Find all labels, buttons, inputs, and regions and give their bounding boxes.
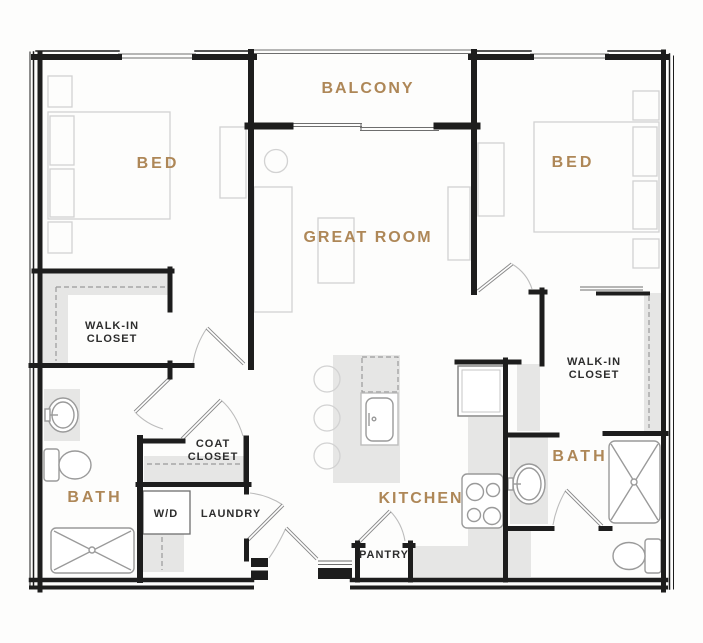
balcony-railing — [254, 50, 471, 54]
kitchen-south-counter-shading — [413, 546, 503, 578]
great-room-label: GREAT ROOM — [303, 229, 432, 246]
balcony-label: BALCONY — [321, 80, 414, 97]
left-walkin-label-line2: CLOSET — [87, 333, 138, 345]
right-closet-entry-shelf — [580, 287, 643, 290]
stove-burner — [487, 484, 500, 497]
right-bed-window — [530, 54, 609, 58]
coat-closet-door-arc — [221, 400, 243, 436]
left-bed-label: BED — [137, 155, 180, 172]
kitchen-label: KITCHEN — [378, 490, 463, 507]
right-bed-pillow — [633, 181, 657, 229]
right-nightstand — [633, 91, 659, 120]
stove-burner — [467, 484, 484, 501]
entry-step-right — [318, 568, 352, 579]
coffee-table — [318, 218, 354, 283]
island-faucet-knob — [372, 417, 376, 421]
right-bed-label: BED — [552, 154, 595, 171]
right-shower-drain — [631, 479, 637, 485]
left-nightstand — [48, 222, 72, 253]
media-console — [448, 187, 470, 260]
round-table — [265, 150, 288, 173]
right-toilet-bowl — [613, 543, 645, 570]
pantry-label: PANTRY — [359, 549, 409, 561]
pantry-door-arc — [390, 511, 405, 541]
laundry-door-arc — [250, 493, 283, 505]
windows — [118, 50, 643, 565]
right-bed — [534, 122, 659, 232]
entry-door-arc — [269, 528, 286, 558]
left-bed-pillow — [50, 169, 74, 217]
shaded-areas — [42, 273, 661, 578]
left-nightstand — [48, 76, 72, 107]
refrigerator-inner — [462, 370, 500, 412]
left-walkin-label-line1: WALK-IN — [85, 320, 139, 332]
floor-plan: BALCONY BED BED GREAT ROOM KITCHEN BATH … — [0, 0, 703, 643]
left-dresser — [220, 127, 246, 198]
coat-closet-label-line2: CLOSET — [188, 451, 239, 463]
right-bed-door-arc — [512, 264, 532, 289]
right-bath-north-wall — [508, 434, 666, 436]
left-sink-faucet-icon — [45, 409, 50, 421]
right-walkin-label-line1: WALK-IN — [567, 356, 621, 368]
right-closet-west-wall — [531, 290, 545, 364]
sofa — [254, 187, 292, 312]
left-toilet-tank — [44, 449, 59, 481]
left-bed-pillow — [50, 116, 74, 165]
left-toilet-bowl — [59, 451, 91, 479]
bed-hall-door-arc — [193, 328, 207, 363]
right-sink-faucet-icon — [508, 478, 513, 490]
stove-burner — [484, 508, 501, 525]
entry-sidelite — [318, 561, 352, 565]
washer-dryer-label: W/D — [154, 508, 178, 520]
right-bath-label: BATH — [552, 448, 607, 465]
coat-closet-label-line1: COAT — [196, 438, 230, 450]
plumbing-chase-shading — [517, 364, 540, 431]
toilet-nook-door-arc — [553, 490, 566, 525]
right-bed-pillow — [633, 127, 657, 176]
balcony-sliding-door — [288, 124, 439, 131]
right-dresser — [478, 143, 504, 216]
right-walkin-label-line2: CLOSET — [569, 369, 620, 381]
left-closet-shelf-shading — [42, 273, 170, 295]
left-bed-window — [118, 54, 196, 58]
right-nightstand — [633, 239, 659, 268]
toilet-nook-shading — [508, 527, 531, 577]
right-toilet-tank — [645, 539, 661, 573]
left-shower-drain — [89, 547, 95, 553]
left-bath-label: BATH — [67, 489, 122, 506]
entry-step-left — [251, 558, 268, 567]
left-bath-door-arc — [135, 412, 163, 429]
left-closet-side-shading — [42, 295, 68, 363]
laundry-label: LAUNDRY — [201, 508, 261, 520]
floor-plan-drawing: BALCONY BED BED GREAT ROOM KITCHEN BATH … — [0, 0, 703, 643]
stove-burner — [468, 509, 481, 522]
right-closet-rod-shading — [644, 293, 661, 431]
island-sink — [366, 398, 393, 441]
